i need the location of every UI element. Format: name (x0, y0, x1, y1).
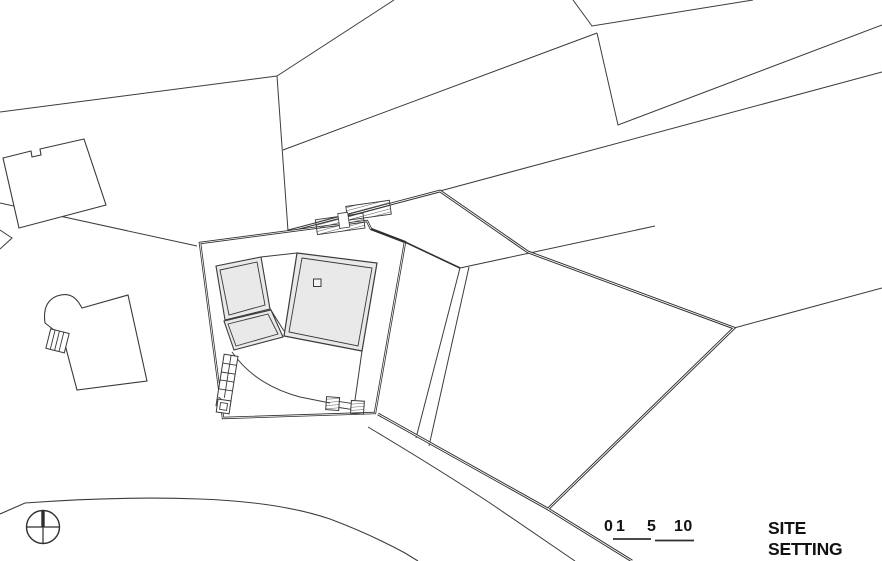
scale-label-1: 1 (616, 518, 625, 536)
boundary-line (0, 76, 277, 112)
annex-upper (216, 253, 297, 320)
footpath-edge-line (429, 267, 469, 446)
neighbor-building-northwest (3, 139, 106, 228)
boundary-line (277, 76, 288, 231)
scale-bar-lines (613, 539, 694, 541)
scale-label-10: 10 (674, 518, 693, 536)
scale-label-0: 0 (604, 518, 613, 536)
neighbor-house-west (45, 295, 148, 390)
rooflight-square (314, 279, 322, 287)
boundary-line (573, 0, 753, 26)
site-plan-drawing (0, 0, 882, 561)
top-retaining-wall-hatch (314, 200, 393, 234)
main-boundary (288, 191, 734, 561)
boundary-line (440, 72, 882, 191)
north-compass-icon (27, 511, 60, 544)
scale-label-5: 5 (647, 518, 656, 536)
drawing-title: SITE SETTING (768, 518, 882, 560)
footpath-edge-line (416, 268, 460, 438)
terrace-line (355, 351, 362, 400)
path-edge (368, 427, 575, 561)
neighbor-house-steps (46, 329, 69, 353)
track-lower-edge (371, 229, 460, 268)
boundary-line (283, 33, 597, 150)
boundary-line (734, 288, 882, 328)
boundary-line (0, 230, 12, 249)
courtyard-edge (232, 352, 330, 403)
road-lines (0, 427, 575, 561)
main-house (284, 253, 377, 351)
road-edge (0, 498, 418, 561)
stair-landing (216, 399, 231, 414)
boundary-line (277, 0, 394, 76)
entrance-gate (326, 397, 365, 415)
